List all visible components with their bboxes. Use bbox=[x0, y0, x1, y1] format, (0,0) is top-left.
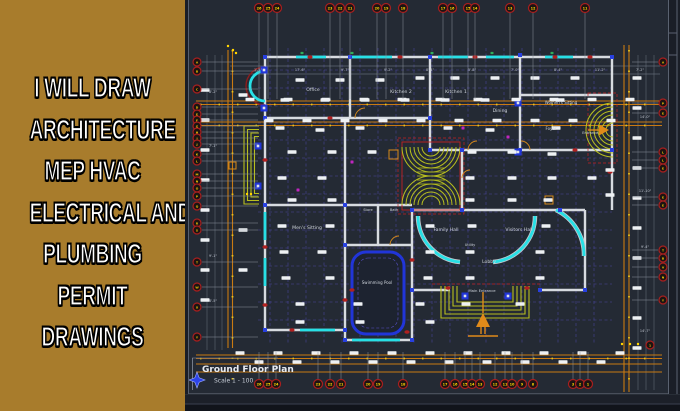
dim-block bbox=[416, 302, 425, 306]
dim-text: 7'-2" bbox=[636, 68, 644, 72]
dim-block bbox=[341, 119, 350, 123]
dim-block bbox=[356, 320, 365, 324]
gig-text-line: PLUMBING bbox=[30, 233, 156, 275]
dim-block bbox=[379, 119, 388, 123]
blue-node bbox=[460, 148, 464, 152]
red-marker bbox=[552, 55, 557, 59]
gig-text-line: DRAWINGS bbox=[30, 316, 156, 358]
dim-block bbox=[559, 360, 568, 364]
yellow-dot bbox=[637, 343, 639, 345]
grid-bubbles-bottom: 25 bbox=[266, 382, 271, 386]
dim-block bbox=[282, 276, 291, 280]
room-label: Entrance 2 bbox=[582, 131, 602, 135]
dim-block bbox=[246, 98, 255, 102]
blue-node bbox=[460, 208, 464, 212]
blue-node bbox=[343, 338, 347, 342]
yellow-dot bbox=[621, 343, 623, 345]
dim-block bbox=[401, 98, 410, 102]
dim-block bbox=[508, 198, 517, 202]
dim-block bbox=[531, 119, 540, 123]
gig-text-line: I WILL DRAW bbox=[30, 67, 156, 109]
dim-block bbox=[328, 150, 337, 154]
blue-box bbox=[507, 295, 510, 298]
room-label: Store bbox=[363, 208, 373, 212]
dim-text: 8'-2" bbox=[209, 90, 217, 94]
red-marker bbox=[409, 258, 414, 262]
red-marker bbox=[397, 55, 402, 59]
gig-text-line: ELECTRICAL AND bbox=[30, 192, 156, 234]
grid-bubbles-top: 26 bbox=[257, 6, 262, 10]
grid-bubbles-bottom: 16 bbox=[453, 382, 458, 386]
magenta-dot bbox=[462, 127, 465, 130]
dim-block bbox=[288, 198, 297, 202]
dim-block bbox=[328, 198, 337, 202]
dim-block bbox=[616, 351, 625, 355]
dim-block bbox=[502, 351, 511, 355]
dim-block bbox=[356, 126, 365, 130]
dim-text: 9'-1" bbox=[209, 254, 217, 258]
grid-bubbles-left: J bbox=[195, 142, 197, 146]
blue-node bbox=[518, 53, 522, 57]
dim-block bbox=[548, 176, 557, 180]
grid-bubbles-top: 14 bbox=[473, 6, 478, 10]
dim-block bbox=[331, 360, 340, 364]
dim-text: 1'-5" bbox=[254, 68, 262, 72]
dim-block bbox=[426, 250, 435, 254]
cad-right-edge bbox=[668, 0, 680, 394]
grid-bubbles-bottom: 21 bbox=[339, 382, 344, 386]
red-marker bbox=[572, 148, 577, 152]
vent-marker bbox=[431, 52, 434, 54]
gig-text-line: PERMIT bbox=[30, 275, 156, 317]
grid-bubbles-top: 21 bbox=[348, 6, 353, 10]
room-label: Women's Sitting bbox=[545, 100, 578, 105]
dim-block bbox=[296, 320, 305, 324]
grid-bubbles-top: 24 bbox=[275, 6, 280, 10]
dim-text: 11'-10" bbox=[639, 189, 652, 193]
dim-block bbox=[633, 346, 642, 350]
grid-bubbles-top: 19 bbox=[384, 6, 389, 10]
dim-block bbox=[274, 351, 283, 355]
red-marker bbox=[587, 55, 592, 59]
grid-bubbles-top: 13 bbox=[508, 6, 513, 10]
dim-block bbox=[416, 76, 425, 80]
blue-node bbox=[583, 288, 587, 292]
grid-bubbles-right: E bbox=[662, 111, 664, 115]
grid-bubbles-bottom: 14 bbox=[470, 382, 475, 386]
dim-block bbox=[542, 224, 551, 228]
dim-block bbox=[508, 176, 517, 180]
grid-bubbles-bottom: 13 bbox=[478, 382, 483, 386]
dim-block bbox=[508, 150, 517, 154]
dim-block bbox=[407, 360, 416, 364]
dim-block bbox=[486, 128, 495, 132]
dim-block bbox=[483, 360, 492, 364]
room-label: Men's Sitting bbox=[292, 225, 322, 231]
dim-block bbox=[278, 224, 287, 228]
dim-block bbox=[468, 150, 477, 154]
grid-bubbles-top: 23 bbox=[328, 6, 333, 10]
dim-block bbox=[569, 119, 578, 123]
yellow-dot bbox=[232, 49, 234, 51]
room-label: Lobby bbox=[482, 259, 496, 265]
dim-block bbox=[571, 76, 580, 80]
gig-text-line: MEP HVAC bbox=[30, 150, 156, 192]
dim-block bbox=[318, 176, 327, 180]
dim-block bbox=[426, 351, 435, 355]
dim-block bbox=[588, 98, 597, 102]
dim-block bbox=[540, 351, 549, 355]
dim-block bbox=[303, 119, 312, 123]
dim-block bbox=[516, 302, 525, 306]
grid-bubbles-right: L bbox=[662, 158, 664, 162]
grid-bubbles-right: E bbox=[662, 203, 664, 207]
dim-block bbox=[626, 98, 635, 102]
room-label: Office bbox=[306, 87, 320, 93]
dim-block bbox=[369, 360, 378, 364]
blue-box bbox=[263, 107, 266, 110]
dim-text: 8'-4" bbox=[426, 68, 434, 72]
dim-block bbox=[493, 119, 502, 123]
grid-bubbles-top: 16 bbox=[450, 6, 455, 10]
grid-bubbles-top: 18 bbox=[401, 6, 406, 10]
blue-node bbox=[428, 55, 432, 59]
dim-block bbox=[466, 198, 475, 202]
vent-marker bbox=[491, 52, 494, 54]
blue-node bbox=[538, 288, 542, 292]
dim-block bbox=[491, 76, 500, 80]
dim-block bbox=[606, 168, 615, 172]
dim-block bbox=[607, 119, 616, 123]
grid-bubbles-top: 11 bbox=[583, 6, 588, 10]
gig-text-line: ARCHITECTURE bbox=[30, 109, 156, 151]
dim-block bbox=[368, 150, 377, 154]
blue-node bbox=[428, 116, 432, 120]
grid-bubbles-left: Q bbox=[196, 204, 199, 208]
dim-text: 17'-6" bbox=[295, 68, 306, 72]
dim-block bbox=[444, 126, 453, 130]
dim-text: 9'-7" bbox=[341, 68, 349, 72]
room-label: Family Hall bbox=[433, 227, 458, 233]
blue-node bbox=[343, 243, 347, 247]
dim-block bbox=[326, 276, 335, 280]
dim-block bbox=[588, 176, 597, 180]
dim-block bbox=[326, 224, 335, 228]
dim-block bbox=[288, 150, 297, 154]
dim-block bbox=[388, 351, 397, 355]
yellow-dot bbox=[235, 52, 237, 54]
grid-bubbles-left: L bbox=[196, 159, 198, 163]
dim-block bbox=[633, 226, 642, 230]
dim-block bbox=[201, 148, 210, 152]
grid-bubbles-left: O bbox=[196, 186, 199, 190]
dim-block bbox=[265, 119, 274, 123]
dim-block bbox=[536, 276, 545, 280]
vent-marker bbox=[551, 52, 554, 54]
magenta-dot bbox=[507, 136, 510, 139]
yellow-dot bbox=[629, 343, 631, 345]
dim-block bbox=[466, 250, 475, 254]
red-marker bbox=[342, 298, 347, 302]
yellow-dot bbox=[246, 193, 248, 195]
dim-block bbox=[481, 98, 490, 102]
grid-bubbles-bottom: 20 bbox=[366, 382, 371, 386]
dim-text: 11'-2" bbox=[595, 68, 606, 72]
blue-node bbox=[558, 208, 562, 212]
room-label: Dining bbox=[493, 108, 508, 114]
cad-left-edge bbox=[185, 0, 188, 394]
red-marker bbox=[262, 303, 267, 307]
grid-bubbles-right: L bbox=[662, 150, 664, 154]
dim-block bbox=[578, 351, 587, 355]
dim-text: 14'-7" bbox=[640, 329, 651, 333]
dim-block bbox=[316, 128, 325, 132]
dim-block bbox=[417, 119, 426, 123]
dim-block bbox=[445, 360, 454, 364]
red-marker bbox=[445, 286, 450, 290]
dim-block bbox=[201, 238, 210, 242]
dim-block bbox=[462, 302, 471, 306]
room-label: Kitchen 1 bbox=[445, 89, 467, 95]
dim-block bbox=[633, 136, 642, 140]
dim-block bbox=[606, 193, 615, 197]
blue-node bbox=[263, 328, 267, 332]
dim-block bbox=[201, 268, 210, 272]
dim-block bbox=[633, 76, 642, 80]
grid-bubbles-top: 12 bbox=[531, 6, 536, 10]
vent-marker bbox=[301, 52, 304, 54]
blue-node bbox=[410, 338, 414, 342]
blue-box bbox=[257, 145, 260, 148]
grid-bubbles-top: 22 bbox=[338, 6, 343, 10]
dim-block bbox=[531, 76, 540, 80]
red-marker bbox=[349, 288, 354, 292]
red-marker bbox=[524, 286, 529, 290]
blue-box bbox=[257, 185, 260, 188]
dim-block bbox=[239, 93, 248, 97]
dim-block bbox=[276, 126, 285, 130]
plan-title: Ground Floor Plan bbox=[202, 365, 294, 375]
dim-block bbox=[597, 360, 606, 364]
dim-block bbox=[544, 198, 553, 202]
grid-bubbles-bottom: 26 bbox=[257, 382, 262, 386]
dim-text: 9'-2" bbox=[384, 68, 392, 72]
grid-bubbles-bottom: 19 bbox=[376, 382, 381, 386]
dim-block bbox=[633, 286, 642, 290]
dim-block bbox=[350, 351, 359, 355]
grid-bubbles-top: 20 bbox=[375, 6, 380, 10]
grid-bubbles-top: 17 bbox=[441, 6, 446, 10]
cad-bottom-band bbox=[185, 395, 680, 404]
grid-bubbles-bottom: 22 bbox=[328, 382, 333, 386]
dim-block bbox=[293, 360, 302, 364]
dim-block bbox=[455, 119, 464, 123]
red-marker bbox=[262, 245, 267, 249]
grid-bubbles-bottom: 12 bbox=[493, 382, 498, 386]
blue-node bbox=[610, 55, 614, 59]
dim-block bbox=[239, 268, 248, 272]
red-marker bbox=[404, 330, 409, 334]
dim-block bbox=[633, 316, 642, 320]
blue-node bbox=[263, 203, 267, 207]
room-label: Utility bbox=[465, 243, 476, 247]
dim-text: 7'-0" bbox=[511, 68, 519, 72]
grid-bubbles-bottom: 24 bbox=[274, 382, 279, 386]
blue-node bbox=[410, 288, 414, 292]
red-marker bbox=[262, 158, 267, 162]
grid-bubbles-right: E bbox=[662, 166, 664, 170]
magenta-dot bbox=[297, 189, 300, 192]
dim-block bbox=[426, 320, 435, 324]
blue-box bbox=[517, 151, 520, 154]
grid-bubbles-bottom: 18 bbox=[401, 382, 406, 386]
dim-text: 8'-4" bbox=[554, 68, 562, 72]
dim-block bbox=[441, 98, 450, 102]
room-label: Foyer bbox=[545, 126, 556, 131]
dim-block bbox=[296, 302, 305, 306]
dim-block bbox=[633, 106, 642, 110]
dim-block bbox=[536, 250, 545, 254]
blue-node bbox=[343, 328, 347, 332]
gig-image: I WILL DRAW ARCHITECTURE MEP HVAC ELECTR… bbox=[0, 0, 680, 411]
corner-bubble: 1 bbox=[649, 343, 651, 347]
dim-block bbox=[280, 250, 289, 254]
blue-node bbox=[410, 208, 414, 212]
grid-bubbles-left: M bbox=[196, 172, 199, 176]
red-marker bbox=[327, 116, 332, 120]
dim-text: 9'-4" bbox=[641, 245, 649, 249]
red-marker bbox=[289, 328, 294, 332]
dim-block bbox=[466, 276, 475, 280]
vent-marker bbox=[351, 52, 354, 54]
room-label: Swimming Pool bbox=[362, 280, 392, 285]
plan-scale: Scale 1 - 100 bbox=[214, 378, 253, 385]
dim-text: 14'-0" bbox=[640, 115, 651, 119]
grid-bubbles-left: S bbox=[196, 228, 198, 232]
red-marker bbox=[307, 55, 312, 59]
blue-node bbox=[610, 148, 614, 152]
dim-block bbox=[201, 208, 210, 212]
dim-block bbox=[466, 176, 475, 180]
blue-box bbox=[517, 102, 520, 105]
blue-box bbox=[464, 295, 467, 298]
dim-block bbox=[281, 98, 290, 102]
blue-node bbox=[343, 203, 347, 207]
blue-box bbox=[263, 69, 266, 72]
room-label: Visitors Hall bbox=[505, 227, 532, 233]
dim-block bbox=[424, 276, 433, 280]
dim-block bbox=[278, 176, 287, 180]
dim-block bbox=[321, 98, 330, 102]
dim-block bbox=[548, 152, 557, 156]
grid-bubbles-bottom: 10 bbox=[510, 382, 515, 386]
dim-block bbox=[236, 351, 245, 355]
dim-block bbox=[312, 351, 321, 355]
room-label: Bath bbox=[390, 208, 398, 212]
gig-text-panel: I WILL DRAW ARCHITECTURE MEP HVAC ELECTR… bbox=[0, 0, 185, 411]
cad-screenshot: 1'-5"17'-6"9'-7"9'-2"8'-4"5'-8"7'-0"8'-4… bbox=[185, 0, 680, 411]
yellow-dot bbox=[250, 193, 252, 195]
dim-text: 7'-1" bbox=[209, 144, 217, 148]
grid-bubbles-bottom: 23 bbox=[316, 382, 321, 386]
magenta-dot bbox=[351, 161, 354, 164]
dim-block bbox=[318, 250, 327, 254]
dim-block bbox=[468, 224, 477, 228]
dim-text: 8'-5" bbox=[209, 299, 217, 303]
dim-block bbox=[512, 98, 521, 102]
dim-block bbox=[354, 302, 363, 306]
blue-node bbox=[428, 148, 432, 152]
yellow-dot bbox=[227, 45, 229, 47]
corner-bubble: 1 bbox=[646, 341, 654, 349]
grid-bubbles-bottom: 17 bbox=[443, 382, 448, 386]
blue-node bbox=[263, 55, 267, 59]
dim-block bbox=[361, 98, 370, 102]
room-label: Kitchen 2 bbox=[390, 89, 412, 95]
grid-bubbles-right: E bbox=[662, 195, 664, 199]
grid-bubbles-top: 25 bbox=[266, 6, 271, 10]
dim-block bbox=[296, 78, 305, 82]
